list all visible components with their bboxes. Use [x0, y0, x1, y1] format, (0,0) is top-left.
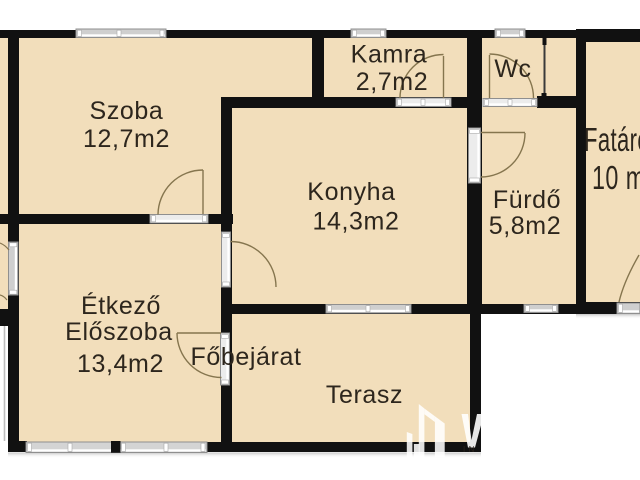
svg-text:14,3m2: 14,3m2 [313, 208, 400, 236]
svg-text:2,7m2: 2,7m2 [356, 68, 428, 96]
svg-text:Konyha: Konyha [307, 178, 395, 206]
svg-text:Fatároló: Fatároló [584, 121, 640, 158]
svg-text:Szoba: Szoba [90, 97, 164, 125]
svg-text:Fürdő: Fürdő [493, 186, 561, 214]
svg-text:Étkező: Étkező [81, 291, 161, 320]
svg-text:5,8m2: 5,8m2 [489, 212, 561, 240]
svg-text:Főbejárat: Főbejárat [190, 343, 301, 371]
svg-text:10 m2: 10 m2 [592, 159, 640, 196]
svg-text:Terasz: Terasz [326, 381, 403, 409]
svg-text:Wc: Wc [494, 55, 531, 83]
svg-text:12,7m2: 12,7m2 [83, 125, 170, 153]
svg-text:13,4m2: 13,4m2 [77, 350, 164, 378]
svg-text:Kamra: Kamra [351, 41, 428, 69]
svg-text:Előszoba: Előszoba [65, 318, 173, 346]
svg-text:I N: I N [463, 445, 475, 454]
